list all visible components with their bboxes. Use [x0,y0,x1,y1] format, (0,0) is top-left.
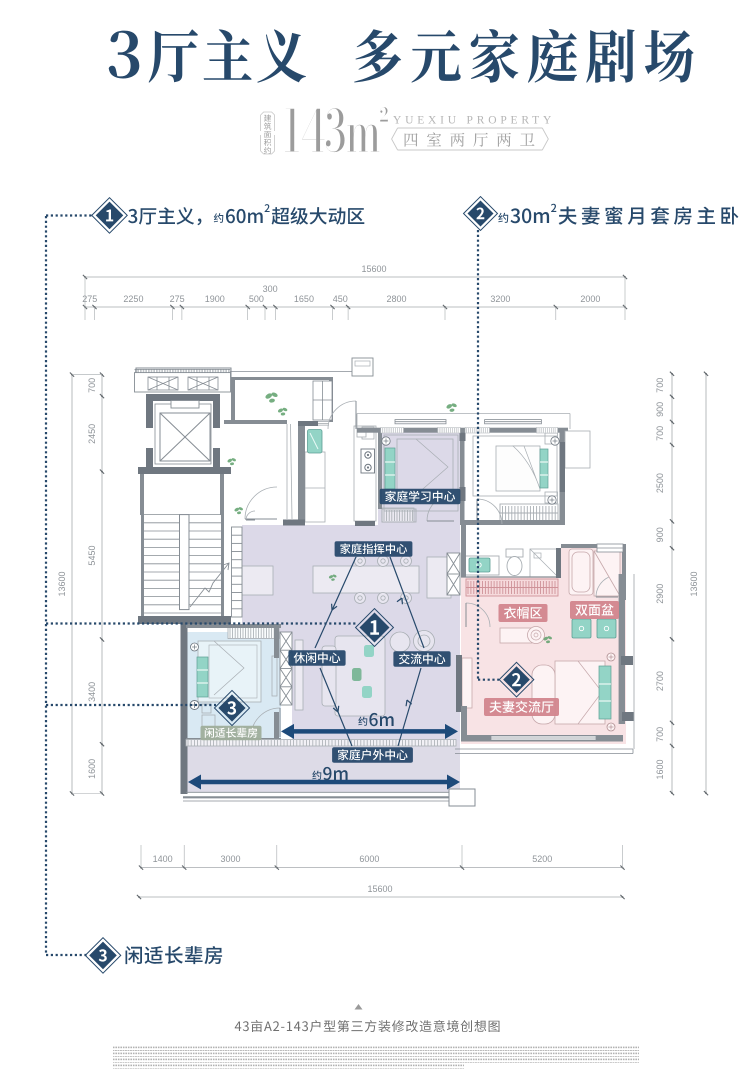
svg-text:13600: 13600 [57,571,67,596]
svg-text:275: 275 [82,294,97,304]
svg-text:2700: 2700 [655,671,665,691]
svg-text:275: 275 [170,294,185,304]
svg-text:1400: 1400 [153,854,173,864]
svg-text:1600: 1600 [655,759,665,779]
svg-text:5200: 5200 [532,854,552,864]
svg-text:2500: 2500 [655,473,665,493]
svg-text:700: 700 [655,378,665,393]
svg-text:2450: 2450 [87,424,97,444]
svg-text:900: 900 [655,527,665,542]
svg-text:500: 500 [249,294,264,304]
svg-text:300: 300 [263,284,278,294]
svg-text:1900: 1900 [205,294,225,304]
svg-text:700: 700 [655,727,665,742]
svg-text:1650: 1650 [294,294,314,304]
svg-text:3400: 3400 [87,682,97,702]
svg-text:5450: 5450 [87,546,97,566]
svg-text:YUEXIU PROPERTY: YUEXIU PROPERTY [393,115,555,127]
svg-text:15600: 15600 [367,884,392,894]
svg-text:13600: 13600 [689,571,699,596]
svg-text:3000: 3000 [220,854,240,864]
svg-text:900: 900 [655,402,665,417]
svg-text:2800: 2800 [387,294,407,304]
svg-text:450: 450 [333,294,348,304]
svg-text:2900: 2900 [655,584,665,604]
svg-text:6000: 6000 [359,854,379,864]
svg-text:2250: 2250 [123,294,143,304]
svg-text:700: 700 [655,426,665,441]
svg-text:3200: 3200 [490,294,510,304]
svg-text:700: 700 [87,378,97,393]
svg-text:2000: 2000 [580,294,600,304]
svg-text:15600: 15600 [361,264,386,274]
svg-text:1600: 1600 [87,759,97,779]
